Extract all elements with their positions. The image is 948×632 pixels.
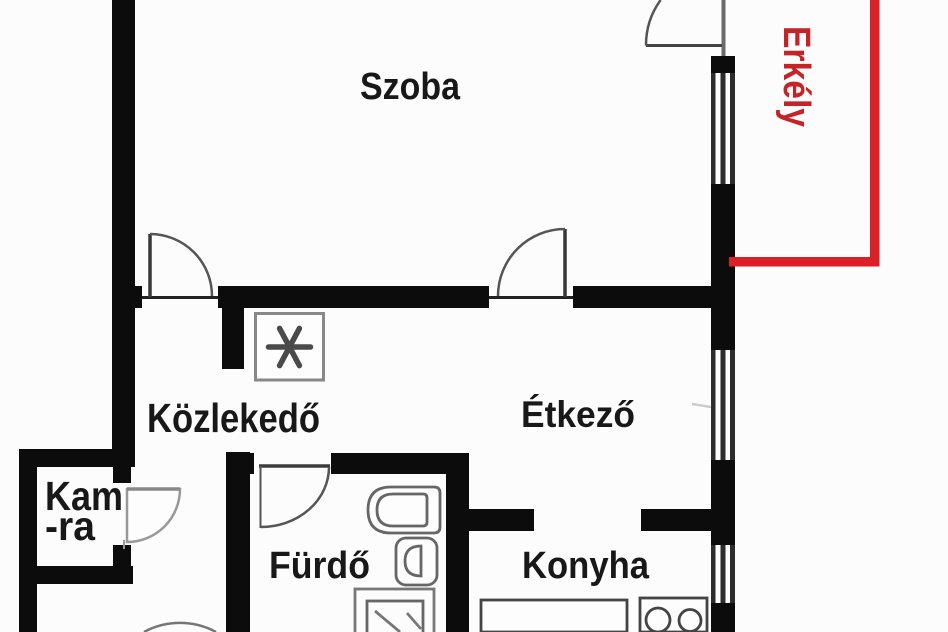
svg-text:Étkező: Étkező — [521, 394, 635, 435]
svg-text:-ra: -ra — [45, 503, 96, 549]
svg-text:Szoba: Szoba — [360, 66, 461, 108]
svg-text:Konyha: Konyha — [522, 545, 650, 587]
svg-text:Fürdő: Fürdő — [269, 545, 370, 587]
svg-text:Erkély: Erkély — [775, 26, 817, 127]
svg-text:Közlekedő: Közlekedő — [147, 395, 320, 441]
